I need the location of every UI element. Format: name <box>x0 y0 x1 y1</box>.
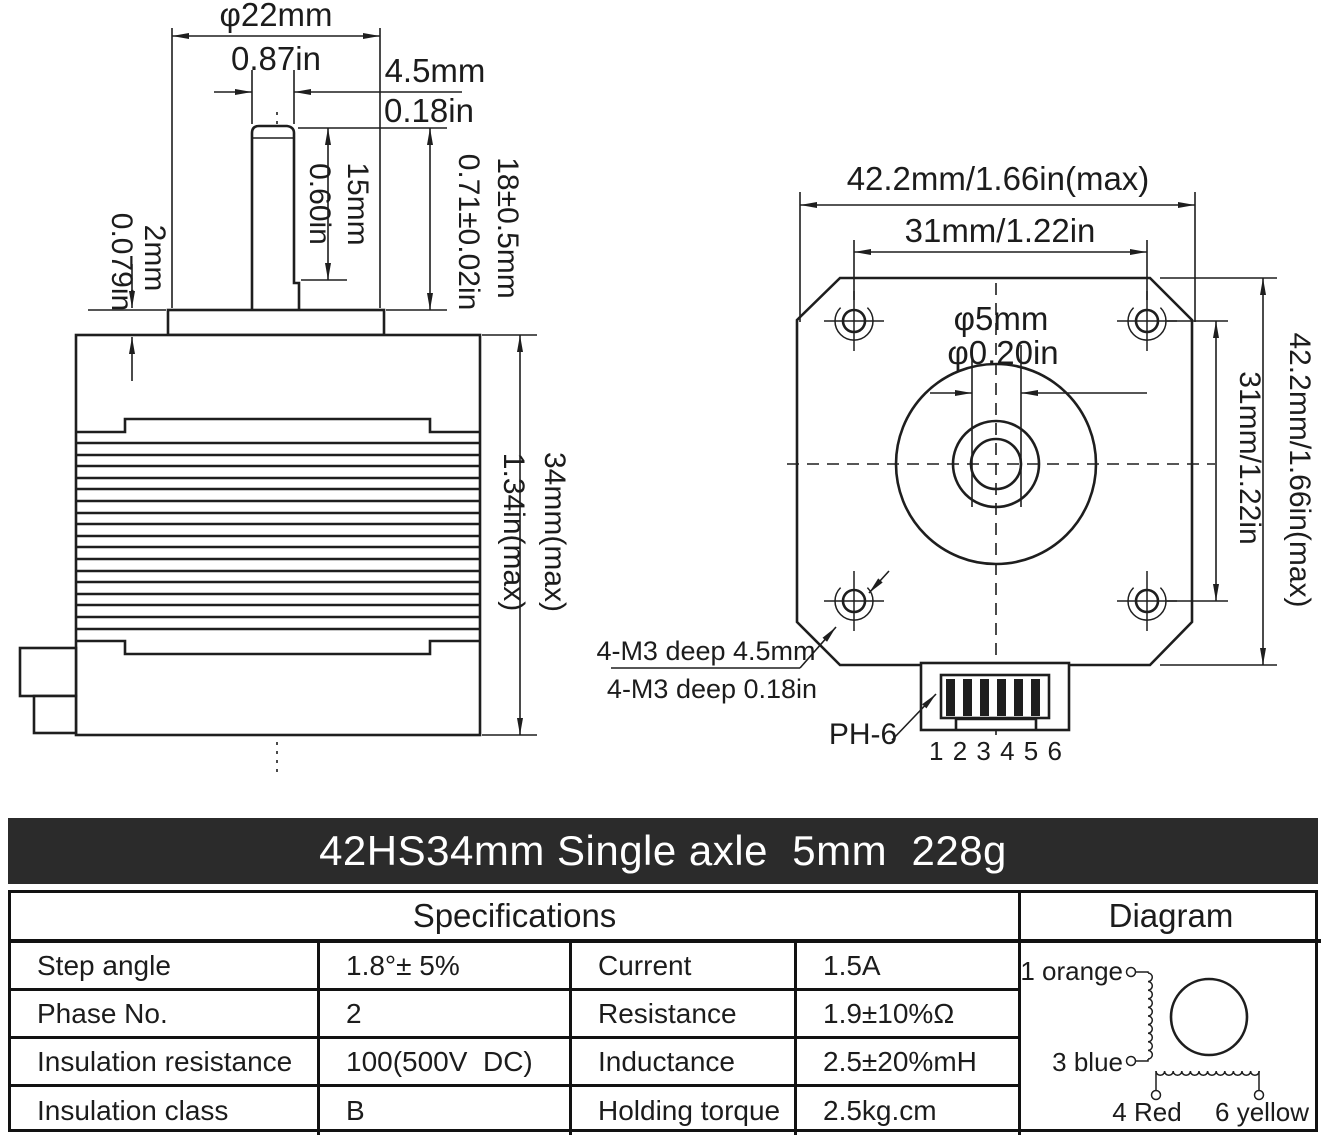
dim-flat-in: 0.18in <box>384 92 474 129</box>
dim-boss-in: 0.079in <box>105 213 138 311</box>
pin-numbers: 1 2 3 4 5 6 <box>929 736 1063 766</box>
dim-flatlen-in: 0.60in <box>303 163 336 245</box>
dim-front-width: 42.2mm/1.66in(max) <box>847 160 1150 197</box>
dim-flatlen-mm: 15mm <box>341 162 374 245</box>
diagram-header: Diagram <box>1021 893 1321 943</box>
dim-shaftlen-mm: 18±0.5mm <box>491 157 524 299</box>
wire-label-3: 3 blue <box>1052 1047 1123 1077</box>
side-view-drawing: φ22mm 0.87in 4.5mm 0.18in 15mm 0.60in 18… <box>20 0 571 778</box>
spec-label: Current <box>572 943 797 991</box>
dim-boss-mm: 2mm <box>138 225 171 292</box>
note-m3-mm: 4-M3 deep 4.5mm <box>596 636 815 666</box>
wiring-diagram: 1 orange 3 blue 4 Red 6 yellow <box>1021 943 1321 1135</box>
wire-label-1: 1 orange <box>1021 956 1123 986</box>
spec-value: 2 <box>320 991 572 1039</box>
dim-shaftlen-in: 0.71±0.02in <box>452 154 485 311</box>
motor-dimension-drawing: φ22mm 0.87in 4.5mm 0.18in 15mm 0.60in 18… <box>0 0 1326 818</box>
stepper-motor-datasheet: { "title": "42HS34mm Single axle 5mm 228… <box>0 0 1326 1135</box>
pilot-boss <box>168 310 384 335</box>
front-view-drawing: 42.2mm/1.66in(max) 31mm/1.22in φ5mm φ0.2… <box>596 160 1316 766</box>
spec-label: Insulation resistance <box>11 1039 320 1087</box>
spec-value: 2.5kg.cm <box>797 1087 1021 1135</box>
spec-value: B <box>320 1087 572 1135</box>
wiring-diagram-cell: 1 orange 3 blue 4 Red 6 yellow <box>1021 943 1321 1135</box>
dim-phi22-mm: φ22mm <box>219 0 332 33</box>
dim-front-holespan-v: 31mm/1.22in <box>1233 371 1266 544</box>
coil-phase-a <box>1148 973 1152 1059</box>
note-m3-in: 4-M3 deep 0.18in <box>607 674 817 704</box>
dim-shaft-dia-in: φ0.20in <box>947 334 1058 371</box>
spec-value: 1.8°± 5% <box>320 943 572 991</box>
spec-header: Specifications <box>11 893 1021 943</box>
dim-bodylen-mm: 34mm(max) <box>538 452 571 612</box>
connector-side <box>20 648 76 733</box>
spec-label: Phase No. <box>11 991 320 1039</box>
spec-value: 100(500V DC) <box>320 1039 572 1087</box>
dim-front-holespan: 31mm/1.22in <box>905 212 1096 249</box>
coil-phase-b <box>1156 1071 1259 1075</box>
wire-label-4: 4 Red <box>1112 1097 1181 1127</box>
spec-value: 1.9±10%Ω <box>797 991 1021 1039</box>
spec-label: Inductance <box>572 1039 797 1087</box>
dim-bodylen-in: 1.34in(max) <box>497 453 530 611</box>
dim-phi22-in: 0.87in <box>231 40 321 77</box>
spec-label: Insulation class <box>11 1087 320 1135</box>
rotor-circle <box>1171 979 1247 1055</box>
connector-front <box>921 663 1069 730</box>
dim-flat-mm: 4.5mm <box>385 52 486 89</box>
product-title: 42HS34mm Single axle 5mm 228g <box>319 827 1007 875</box>
dim-front-height: 42.2mm/1.66in(max) <box>1283 332 1316 607</box>
specifications-table: Specifications Diagram Step angle 1.8°± … <box>8 890 1318 1132</box>
spec-label: Step angle <box>11 943 320 991</box>
spec-label: Resistance <box>572 991 797 1039</box>
wire-label-6: 6 yellow <box>1215 1097 1309 1127</box>
spec-value: 2.5±20%mH <box>797 1039 1021 1087</box>
connector-label: PH-6 <box>829 718 897 751</box>
spec-label: Holding torque <box>572 1087 797 1135</box>
motor-shaft <box>252 126 299 310</box>
spec-value: 1.5A <box>797 943 1021 991</box>
product-title-bar: 42HS34mm Single axle 5mm 228g <box>8 818 1318 884</box>
dim-shaft-dia-mm: φ5mm <box>954 300 1049 337</box>
